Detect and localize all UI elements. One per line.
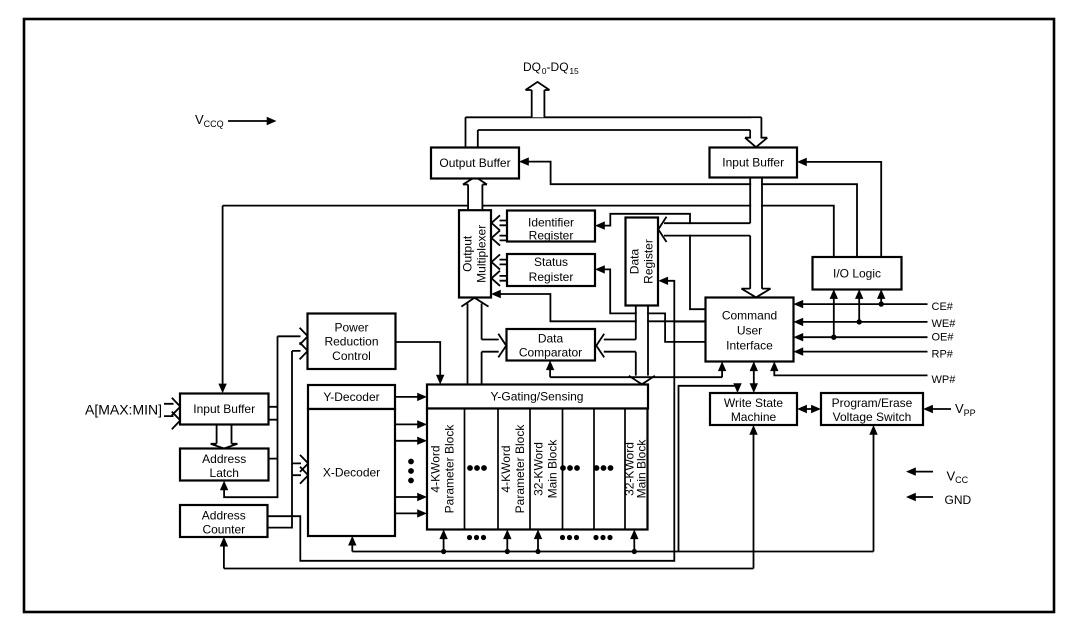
svg-text:Y-Gating/Sensing: Y-Gating/Sensing (491, 390, 584, 404)
svg-text:Comparator: Comparator (519, 346, 582, 360)
svg-text:WE#: WE# (932, 318, 957, 330)
svg-text:Interface: Interface (726, 339, 773, 353)
svg-text:Output: Output (461, 235, 475, 272)
svg-text:Control: Control (332, 349, 371, 363)
svg-text:Register: Register (529, 270, 574, 284)
svg-text:Status: Status (534, 255, 568, 269)
svg-text:Command: Command (722, 309, 777, 323)
svg-text:Machine: Machine (731, 410, 777, 424)
svg-text:Address: Address (202, 509, 246, 523)
svg-text:Main Block: Main Block (546, 439, 560, 499)
svg-text:RP#: RP# (932, 349, 954, 361)
svg-text:X-Decoder: X-Decoder (323, 466, 380, 480)
svg-text:Power: Power (334, 321, 368, 335)
svg-text:Address: Address (202, 452, 246, 466)
svg-text:OE#: OE# (932, 332, 955, 344)
svg-text:Parameter Block: Parameter Block (443, 424, 457, 514)
svg-text:Input Buffer: Input Buffer (722, 156, 784, 170)
svg-text:WP#: WP# (932, 374, 957, 386)
svg-text:Counter: Counter (202, 523, 245, 537)
svg-text:GND: GND (945, 493, 972, 507)
svg-text:Input Buffer: Input Buffer (193, 402, 255, 416)
svg-text:User: User (737, 324, 762, 338)
svg-text:Reduction: Reduction (324, 335, 378, 349)
svg-text:Main Block: Main Block (635, 439, 649, 499)
svg-text:Write State: Write State (724, 396, 783, 410)
svg-text:Identifier: Identifier (528, 216, 574, 230)
svg-text:Parameter Block: Parameter Block (513, 424, 527, 514)
svg-text:4-KWord: 4-KWord (429, 445, 443, 492)
svg-text:Register: Register (642, 239, 656, 284)
svg-text:Output Buffer: Output Buffer (439, 156, 510, 170)
svg-text:Data: Data (628, 249, 642, 275)
svg-text:Voltage Switch: Voltage Switch (833, 410, 912, 424)
svg-text:4-KWord: 4-KWord (499, 445, 513, 492)
svg-text:Multiplexer: Multiplexer (475, 225, 489, 283)
svg-text:A[MAX:MIN]: A[MAX:MIN] (85, 402, 162, 418)
svg-text:32-KWord: 32-KWord (532, 442, 546, 496)
svg-text:Data: Data (538, 332, 564, 346)
svg-text:Latch: Latch (210, 466, 239, 480)
svg-text:Y-Decoder: Y-Decoder (323, 390, 379, 404)
svg-text:I/O Logic: I/O Logic (833, 267, 881, 281)
svg-text:Program/Erase: Program/Erase (832, 396, 913, 410)
svg-text:Register: Register (529, 229, 574, 243)
svg-text:CE#: CE# (932, 301, 954, 313)
